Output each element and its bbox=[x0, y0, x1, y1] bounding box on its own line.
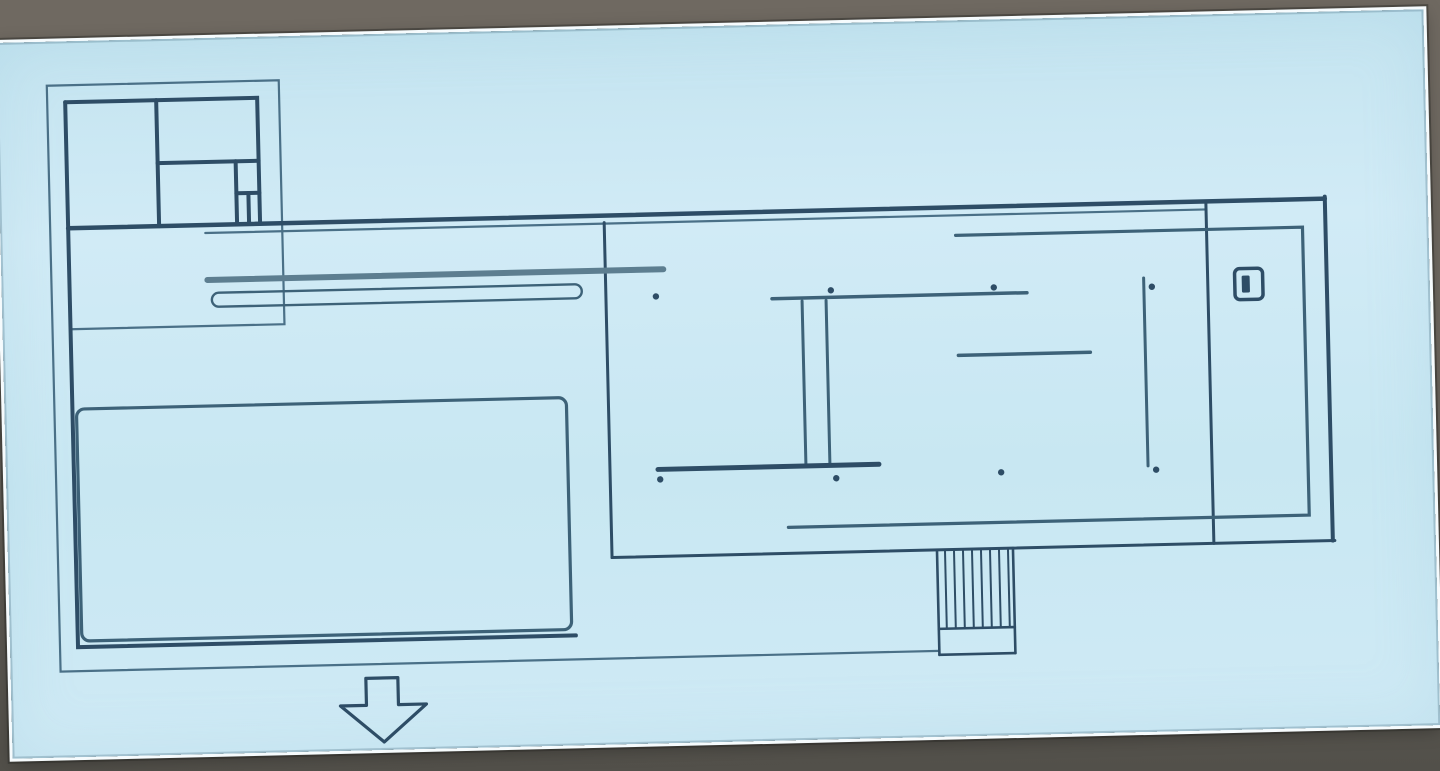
column-dot bbox=[1153, 466, 1160, 473]
column-dot bbox=[833, 475, 840, 482]
column-dot bbox=[653, 293, 660, 300]
column-dot bbox=[998, 469, 1005, 476]
center-wall-upper bbox=[772, 293, 1027, 299]
podium-outline bbox=[47, 65, 940, 672]
stair-tread-line bbox=[981, 549, 983, 628]
mid-right-wall bbox=[958, 352, 1090, 355]
right-terrace-outline bbox=[782, 227, 1310, 527]
projection-slide bbox=[0, 9, 1440, 758]
column-dot bbox=[991, 284, 998, 291]
photo-backdrop bbox=[0, 0, 1440, 771]
annex-room-dividers bbox=[156, 98, 260, 226]
stair-tread-line bbox=[990, 549, 992, 628]
stair-tread-line bbox=[954, 549, 956, 628]
right-vertical-wall bbox=[1144, 278, 1148, 466]
stair-tread-line bbox=[972, 549, 974, 628]
stair-tread-line bbox=[945, 550, 947, 629]
stair-treads bbox=[945, 548, 1010, 628]
interior-bench bbox=[207, 269, 664, 307]
service-annex bbox=[65, 98, 260, 228]
large-pool bbox=[76, 398, 571, 641]
stair-tread-line bbox=[999, 548, 1001, 627]
column-dot bbox=[1149, 283, 1156, 290]
column-dot bbox=[828, 287, 835, 294]
down-arrow-icon bbox=[340, 677, 427, 743]
center-wall-lower bbox=[658, 464, 879, 469]
floor-plan bbox=[0, 9, 1440, 758]
onyx-double-wall bbox=[802, 300, 830, 465]
west-wall bbox=[65, 91, 576, 648]
small-pool-sculpture bbox=[1234, 268, 1263, 300]
entrance-stairs bbox=[937, 548, 1015, 655]
column-dot bbox=[657, 476, 664, 483]
stair-tread-line bbox=[963, 549, 965, 628]
columns bbox=[653, 279, 1160, 485]
stair-tread-line bbox=[1008, 548, 1010, 627]
